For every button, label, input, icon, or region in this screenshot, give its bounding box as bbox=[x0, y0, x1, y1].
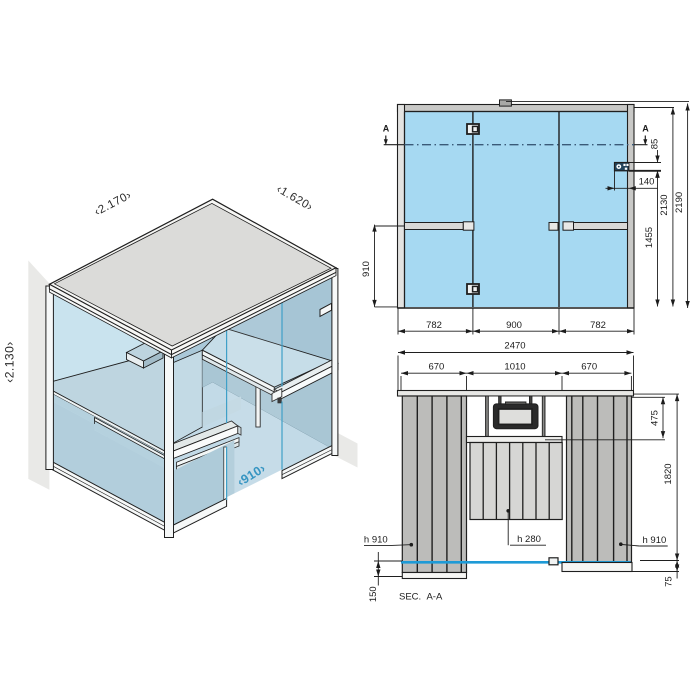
svg-text:670: 670 bbox=[428, 362, 444, 373]
svg-text:h 910: h 910 bbox=[643, 535, 667, 546]
svg-text:1455: 1455 bbox=[644, 227, 655, 248]
svg-text:h 910: h 910 bbox=[364, 535, 388, 546]
svg-text:900: 900 bbox=[506, 320, 522, 331]
svg-text:910: 910 bbox=[361, 261, 372, 277]
svg-text:85: 85 bbox=[649, 139, 660, 150]
svg-text:475: 475 bbox=[650, 410, 661, 426]
svg-text:‹2.130›: ‹2.130› bbox=[3, 341, 17, 383]
svg-text:75: 75 bbox=[664, 576, 675, 587]
svg-text:1820: 1820 bbox=[663, 463, 674, 484]
svg-text:2130: 2130 bbox=[659, 194, 670, 215]
svg-text:150: 150 bbox=[368, 586, 379, 602]
svg-text:140: 140 bbox=[639, 177, 655, 188]
svg-text:SEC. A-A: SEC. A-A bbox=[399, 592, 443, 603]
svg-text:1010: 1010 bbox=[504, 362, 525, 373]
svg-text:2190: 2190 bbox=[674, 192, 685, 213]
svg-text:670: 670 bbox=[581, 362, 597, 373]
svg-text:A: A bbox=[642, 124, 649, 134]
svg-text:782: 782 bbox=[426, 320, 442, 331]
svg-text:A: A bbox=[383, 124, 390, 134]
svg-text:782: 782 bbox=[590, 320, 606, 331]
svg-text:h 280: h 280 bbox=[517, 534, 541, 545]
svg-text:2470: 2470 bbox=[504, 341, 525, 352]
